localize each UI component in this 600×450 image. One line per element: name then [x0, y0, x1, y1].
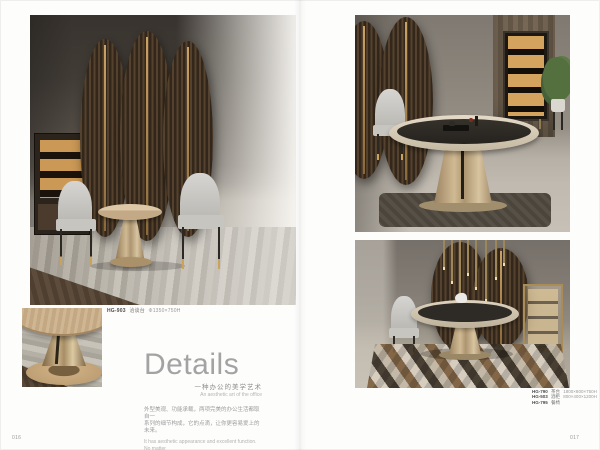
plant-pot	[551, 99, 565, 112]
pendant-light	[485, 240, 487, 302]
white-sculpture	[455, 292, 468, 303]
pendant-light	[467, 240, 469, 276]
details-subtitle-cn: 一种办公的美学艺术	[144, 381, 262, 391]
page-number-right: 017	[570, 435, 579, 441]
screen-gold-bar	[405, 22, 407, 180]
round-table-top	[98, 204, 162, 220]
screen-gold-bar	[363, 26, 365, 175]
teapot	[449, 121, 455, 126]
left-photo-caption: HG-903 洽谈台 Φ1350×750H	[107, 307, 181, 314]
pendant-light	[495, 240, 497, 280]
bottle	[475, 116, 478, 126]
right-bottom-photo	[355, 240, 570, 388]
pendant-light	[451, 240, 453, 284]
product-name: 洽谈台	[129, 308, 145, 314]
gold-display-cabinet	[523, 284, 563, 352]
page-number-left: 016	[12, 435, 21, 441]
body-cn-line: 系列的细节构成，它的点滴，让你更容易爱上的未来。	[144, 421, 262, 435]
product-size: 800×400×1200H	[563, 394, 597, 399]
details-text-block: Details 一种办公的美学艺术 An aesthetic art of th…	[144, 352, 262, 450]
chair-leg	[218, 227, 220, 269]
oval-table-top	[397, 119, 531, 144]
product-size: Φ1350×750H	[149, 308, 181, 314]
details-body-cn: 外型美观、功能承载，两项完美的办公生活都取自一 系列的细节构成，它的点滴，让你更…	[144, 407, 262, 435]
pendant-light	[475, 240, 477, 290]
pendant-light	[459, 240, 461, 298]
table-base-disc	[110, 257, 152, 267]
product-spec-list: HG-790 茶台 1800×800×750H HG-503 酒柜 800×40…	[532, 389, 597, 405]
screen-gold-bar	[104, 45, 106, 231]
center-fold	[294, 0, 306, 450]
flower-accent	[469, 118, 473, 122]
product-name: 酒柜	[551, 394, 560, 399]
pendant-light	[503, 240, 505, 266]
chair-leg	[377, 134, 379, 160]
tea-tray	[443, 125, 469, 131]
left-main-photo	[30, 15, 296, 305]
body-cn-line: 外型美观、功能承载，两项完美的办公生活都取自一	[144, 407, 262, 421]
product-code: HG-503	[532, 394, 548, 399]
product-spec-row: HG-795 餐椅	[532, 400, 597, 405]
details-subtitle-en: An aesthetic art of the office	[144, 392, 262, 398]
oval-screen-panel	[473, 248, 529, 348]
details-title: Details	[144, 352, 262, 378]
cabinet-lit-shelves	[508, 36, 544, 116]
catalog-spread: HG-903 洽谈台 Φ1350×750H Details 一种办公的美学艺术 …	[0, 0, 600, 450]
product-code: HG-795	[532, 400, 548, 405]
chair-leg	[60, 229, 62, 265]
cabinet-lit-shelves	[528, 289, 558, 347]
screen-gold-bar	[500, 251, 502, 345]
right-top-photo	[355, 15, 570, 232]
round-table-top	[418, 303, 512, 322]
cabinet-leg	[539, 119, 541, 129]
plant-stand	[553, 112, 563, 130]
cone-seam	[461, 149, 464, 199]
wood-table-top	[22, 308, 102, 336]
body-en-line: It has aesthetic appearance and excellen…	[144, 439, 262, 450]
potted-plant	[543, 57, 570, 101]
chair-leg	[90, 229, 92, 265]
product-code: HG-903	[107, 308, 126, 314]
pendant-light	[443, 240, 445, 270]
table-base-detail-photo	[22, 308, 102, 387]
chair-leg	[182, 227, 184, 269]
details-body-en: It has aesthetic appearance and excellen…	[144, 439, 262, 450]
product-name: 餐椅	[551, 400, 560, 405]
